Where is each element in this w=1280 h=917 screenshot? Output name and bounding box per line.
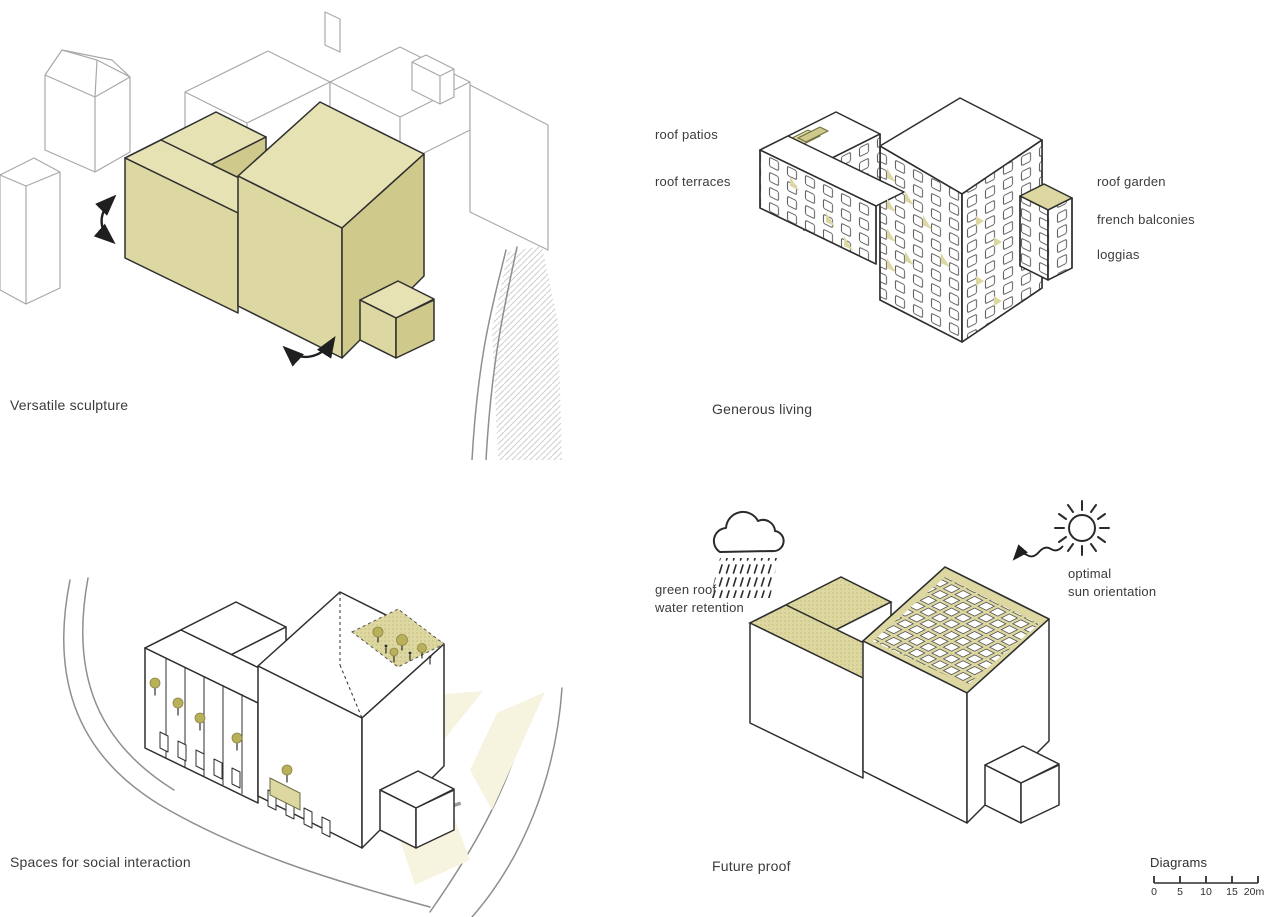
building-future-proof [750, 567, 1059, 823]
scale-bar-title: Diagrams [1150, 855, 1266, 870]
street-hatch [472, 246, 562, 460]
scale-bar: Diagrams 0 5 10 15 20m [1150, 855, 1266, 900]
label-french-balconies: french balconies [1097, 211, 1195, 229]
rotation-arrow-icon [102, 198, 113, 241]
future-proof-drawing [640, 460, 1280, 917]
sun-direction-arrow [1015, 546, 1063, 558]
scale-bar-ruler [1150, 874, 1262, 886]
scale-bar-labels: 0 5 10 15 20m [1150, 886, 1262, 900]
diagram-sheet: Versatile sculpture roof patios roof ter… [0, 0, 1280, 917]
caption-future-proof: Future proof [712, 857, 791, 875]
generous-living-drawing [640, 0, 1280, 460]
building-generous-living [760, 98, 1072, 342]
social-interaction-drawing [0, 460, 640, 917]
label-loggias: loggias [1097, 246, 1140, 264]
label-green-roof: green roof water retention [655, 581, 744, 616]
building-mass [125, 102, 434, 358]
label-roof-patios: roof patios [655, 126, 718, 144]
caption-social-interaction: Spaces for social interaction [10, 853, 191, 871]
label-sun-orientation: optimal sun orientation [1068, 565, 1156, 600]
caption-generous-living: Generous living [712, 400, 812, 418]
label-roof-terraces: roof terraces [655, 173, 731, 191]
caption-versatile-sculpture: Versatile sculpture [10, 396, 128, 414]
versatile-sculpture-drawing [0, 0, 640, 460]
label-roof-garden: roof garden [1097, 173, 1166, 191]
